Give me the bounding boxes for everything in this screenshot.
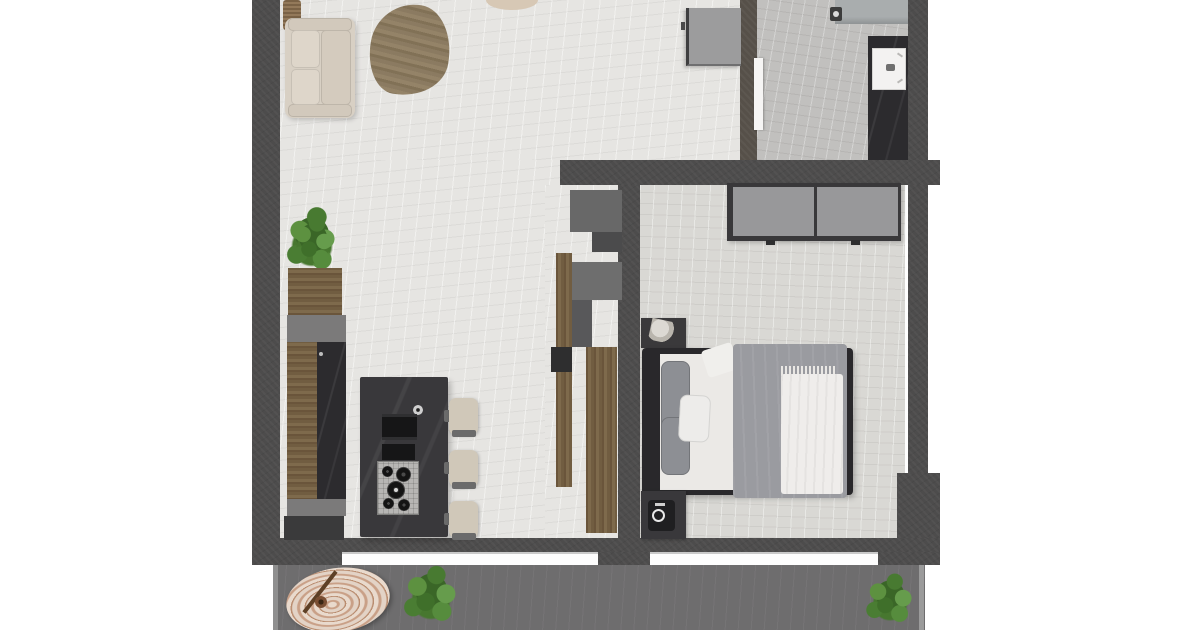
counter-wood-run (287, 342, 319, 500)
headboard-wood-panel (586, 347, 617, 533)
wall-left (252, 0, 280, 565)
speaker-ring (652, 509, 665, 522)
sofa-back-cushion-2 (291, 69, 320, 105)
counter-gray-segment (287, 315, 346, 342)
sofa-back-cushion-1 (291, 30, 320, 68)
hob-burner-top-right (396, 467, 411, 482)
hall-cabinet-handle (681, 22, 685, 30)
wall-mid-right-ext (908, 160, 940, 185)
floor-plan-canvas (0, 0, 1200, 630)
sofa-seat (321, 30, 351, 105)
balcony-left-edge (273, 565, 278, 630)
stool-1-footrest (452, 430, 476, 437)
sofa-armrest-bottom (288, 104, 352, 117)
counter-handle (319, 352, 323, 356)
stool-3-footrest (452, 533, 476, 540)
hall-storage-cabinet (686, 8, 741, 66)
wall-right-top (908, 0, 928, 473)
stool-2-footrest (452, 482, 476, 489)
counter-dark-end (284, 516, 344, 540)
divider-block-d (572, 300, 592, 347)
throw-blanket-white (781, 374, 843, 494)
hob-burner-bottom-right (398, 499, 410, 511)
divider-block-a (570, 190, 622, 232)
wall-bottom-right-seg (878, 552, 940, 565)
kitchen-plant-overlay (288, 212, 338, 276)
parasol-hub (315, 596, 327, 608)
washbasin-faucet (886, 64, 895, 71)
pillow-white-small (678, 394, 711, 443)
bedroom-balcony-window (650, 552, 878, 565)
wall-mid-horizontal (560, 160, 940, 185)
shower-head-dot (833, 11, 839, 17)
wardrobe-foot-right (851, 240, 860, 245)
balcony-plant-right (860, 571, 920, 630)
wardrobe-door-left (733, 187, 814, 236)
hob-burner-top-left (382, 466, 393, 477)
hob-burner-bottom-left (383, 498, 394, 509)
hob-burner-center-cap (393, 487, 399, 493)
tv-unit (551, 347, 572, 372)
wall-bottom-band (342, 538, 940, 552)
counter-dark-run (317, 342, 346, 499)
counter-gray-end (287, 499, 346, 516)
shower-screen (835, 0, 908, 24)
speaker-label (655, 503, 665, 506)
wardrobe-foot-left (766, 240, 775, 245)
divider-block-b (592, 232, 622, 252)
island-inset-2 (382, 444, 415, 460)
wall-bottom-left-chunk (252, 538, 342, 565)
nightstand-upper-decor (648, 318, 676, 345)
wardrobe-door-right (817, 187, 898, 236)
island-sink-inset (382, 414, 417, 440)
balcony-plant-left (397, 563, 465, 630)
wall-door-threshold (598, 552, 650, 565)
divider-block-c (572, 262, 622, 300)
bathroom-door-leaf (754, 58, 763, 130)
living-balcony-window (342, 552, 598, 565)
